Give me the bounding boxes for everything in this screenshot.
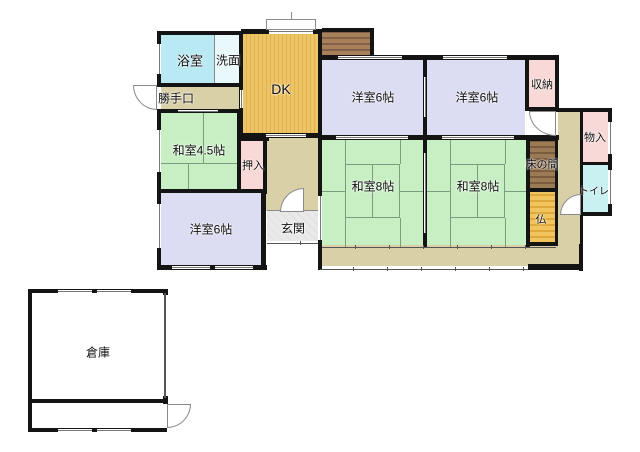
door-warehouse — [167, 404, 191, 428]
window — [442, 136, 514, 139]
tatami-line — [450, 140, 451, 164]
room-label-tokonoma: 床の間 — [526, 156, 559, 172]
room-label-warehouse: 倉庫 — [86, 344, 110, 361]
window — [443, 56, 507, 59]
window — [215, 266, 253, 269]
room-label-butsudan: 仏 — [536, 211, 547, 227]
divider-line — [214, 35, 215, 83]
room-label-washitsu8-l: 和室8帖 — [352, 178, 395, 195]
wall-segment — [261, 192, 266, 270]
window — [424, 153, 426, 233]
wall-segment — [526, 188, 558, 192]
window — [608, 122, 612, 154]
tatami-line — [505, 140, 506, 164]
wall-segment — [580, 216, 583, 246]
sliding-door-line — [267, 241, 318, 245]
window — [338, 56, 402, 59]
window — [178, 110, 218, 112]
wall-segment — [237, 112, 241, 192]
wall-segment — [157, 83, 243, 87]
wall-segment — [157, 31, 243, 35]
wall-segment — [322, 28, 374, 32]
wall-segment — [580, 212, 612, 216]
room-label-yoshitsu-tr: 洋室6帖 — [456, 89, 499, 106]
window — [157, 44, 161, 74]
room-label-washroom: 洗面 — [216, 52, 240, 69]
divider-line — [291, 12, 292, 19]
tatami-line — [345, 218, 346, 247]
tatami-line — [400, 140, 401, 164]
wall-segment — [528, 264, 582, 270]
room-label-genkan: 玄関 — [281, 220, 305, 237]
thin-wall-segment — [164, 293, 166, 398]
room-label-toilet: トイレ — [579, 183, 609, 198]
window — [97, 429, 131, 432]
room-label-oshiire: 押入 — [242, 157, 264, 173]
wall-segment — [526, 137, 558, 141]
wall-segment — [555, 55, 559, 111]
tatami-line — [188, 163, 189, 189]
window — [157, 130, 161, 172]
window — [424, 77, 426, 117]
room-label-washitsu8-r: 和室8帖 — [457, 178, 500, 195]
room-label-yoshitsu-tl: 洋室6帖 — [352, 89, 395, 106]
tatami-line — [450, 218, 451, 247]
corridor-right — [558, 112, 580, 245]
wall-segment — [28, 289, 32, 432]
window — [157, 204, 161, 248]
room-label-monoire: 物入 — [584, 129, 606, 145]
window — [172, 266, 210, 269]
door-hall-to-room — [529, 111, 556, 136]
wall-segment — [555, 137, 558, 244]
room-label-washitsu45: 和室4.5帖 — [173, 142, 226, 159]
floor-plan-canvas: 浴室洗面DK勝手口和室4.5帖押入洋室6帖玄関洋室6帖洋室6帖収納物入トイレ床の… — [0, 0, 640, 452]
wall-segment — [555, 108, 612, 112]
window — [318, 196, 322, 240]
window — [97, 290, 131, 293]
window — [240, 90, 243, 108]
wall-segment — [28, 399, 167, 403]
tatami-line — [161, 163, 241, 164]
window — [336, 136, 408, 139]
room-label-bathroom: 浴室 — [177, 51, 203, 70]
door-backdoor — [133, 85, 157, 110]
wood-deck — [322, 32, 370, 55]
room-label-backdoor: 勝手口 — [158, 90, 194, 107]
room-label-dk: DK — [271, 81, 290, 97]
window — [58, 429, 92, 432]
window — [58, 290, 92, 293]
window — [266, 134, 306, 137]
tatami-line — [400, 218, 401, 247]
wall-segment — [580, 162, 611, 165]
room-label-yoshitsu-bl: 洋室6帖 — [190, 221, 233, 238]
wall-segment — [526, 137, 530, 247]
tatami-line — [427, 191, 450, 192]
sliding-door-line — [320, 267, 528, 271]
bay-window-icon — [266, 19, 316, 30]
warehouse-strip — [32, 403, 164, 428]
tatami-line — [400, 191, 425, 192]
tatami-line — [345, 140, 346, 164]
tatami-line — [322, 191, 345, 192]
wall-segment — [525, 55, 529, 111]
tatami-line — [505, 218, 506, 247]
wall-segment — [157, 189, 265, 193]
sliding-door-line — [322, 245, 556, 249]
room-label-shuno: 収納 — [531, 76, 553, 92]
